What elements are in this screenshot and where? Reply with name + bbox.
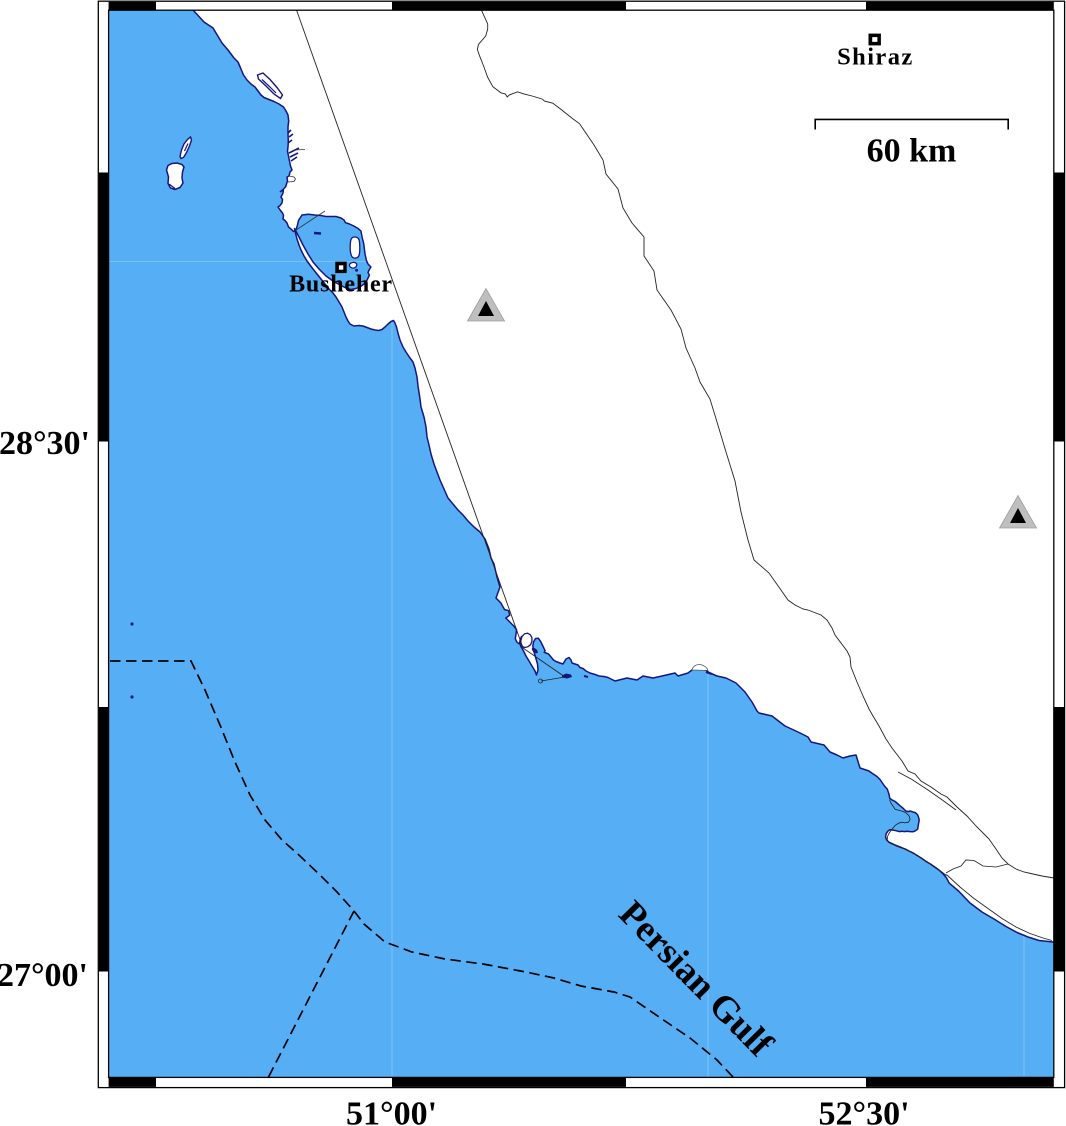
svg-text:27°00': 27°00' bbox=[0, 957, 88, 994]
svg-text:52°30': 52°30' bbox=[818, 1096, 909, 1126]
svg-text:Shiraz: Shiraz bbox=[837, 44, 913, 71]
svg-text:51°00': 51°00' bbox=[346, 1096, 437, 1126]
svg-text:60 km: 60 km bbox=[867, 132, 957, 169]
svg-text:28°30': 28°30' bbox=[0, 425, 90, 462]
svg-text:Busheher: Busheher bbox=[289, 272, 393, 298]
